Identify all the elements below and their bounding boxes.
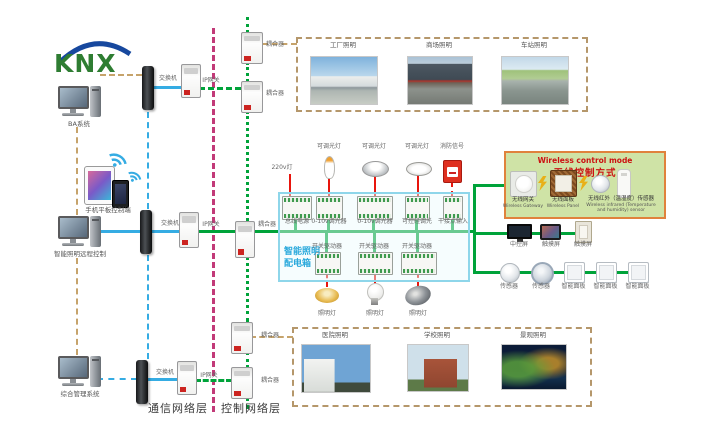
- fire-alarm-icon: [443, 160, 462, 183]
- pc-tower: [90, 356, 101, 387]
- pc-monitor: [58, 216, 89, 239]
- scene-label-mall: 商场照明: [407, 42, 471, 49]
- blue-line-pc3-switch3: [97, 378, 137, 380]
- smart-panel1-icon: [564, 262, 585, 283]
- central-screen-label: 中控屏: [500, 242, 538, 249]
- wireless-gateway-label-en: Wireless Gateway: [501, 204, 545, 209]
- module-bus-power: [282, 196, 312, 220]
- blue-line-vertical-2: [147, 255, 149, 359]
- distribution-title-line2: 配电箱: [284, 258, 320, 270]
- coupler2-label: 耦合器: [262, 91, 288, 98]
- touch-screen2-icon: [575, 221, 592, 243]
- green-dotted-3: [246, 111, 249, 221]
- sensor2-icon: [531, 262, 554, 285]
- lighting-lamp3-label: 照明灯: [403, 311, 433, 318]
- spotlight-icon: [403, 283, 433, 308]
- scene-label-landscape: 景观照明: [501, 332, 565, 339]
- panel-light-icon: [406, 162, 432, 176]
- wireless-gateway-icon: [510, 171, 537, 197]
- dimmable-lamp1-label: 可调光灯: [313, 144, 345, 151]
- wireless-panel-icon: [550, 170, 577, 197]
- pc-remote-control: [58, 216, 102, 252]
- wireless-panel-label: 无线面板 Wireless Panel: [545, 197, 581, 209]
- lightning-icon: [537, 176, 548, 191]
- network-switch-3: [136, 360, 148, 404]
- gateway1-label: IP网关: [198, 78, 224, 85]
- module-triac-dimmer: [405, 196, 430, 220]
- pc2-label: 智能照明远程控制: [36, 251, 124, 258]
- network-switch-2: [140, 210, 152, 254]
- pc-base: [62, 383, 84, 386]
- mobile-label: 手机平板控制端: [60, 207, 156, 214]
- lighting-lamp2-label: 照明灯: [360, 311, 390, 318]
- gateway3-label: IP网关: [196, 373, 222, 380]
- pc-tower: [90, 216, 101, 247]
- wireless-title-en: Wireless control mode: [506, 156, 664, 165]
- knx-logo-text: KNX: [54, 49, 117, 78]
- bulb-base: [371, 298, 378, 305]
- ceiling-lamp-icon: [315, 288, 339, 303]
- pc-tower: [90, 86, 101, 117]
- wireless-gateway-label-cn: 无线网关: [501, 197, 545, 204]
- smart-panel1-label: 智能面板: [558, 284, 589, 291]
- green-dotted-2: [246, 62, 249, 82]
- gateway2-label: IP网关: [198, 222, 224, 229]
- coupler-5: [231, 367, 253, 399]
- photo-mall-lighting: [407, 56, 473, 105]
- dimmable-lamp2-label: 可调光灯: [358, 144, 390, 151]
- lighting-lamp1-label: 照明灯: [312, 311, 342, 318]
- wireless-gateway-label: 无线网关 Wireless Gateway: [501, 197, 545, 209]
- smart-panel2-icon: [596, 262, 617, 283]
- module-dimmer-1: [316, 196, 343, 220]
- switch3-label: 交换机: [152, 370, 178, 377]
- switch2-label: 交换机: [157, 221, 183, 228]
- photo-hospital-lighting: [301, 344, 371, 393]
- coupler-3: [235, 221, 255, 258]
- lightning-icon: [578, 176, 589, 191]
- sensor1-label: 传感器: [494, 284, 524, 291]
- coupler-4: [231, 322, 253, 354]
- downlight-icon: [362, 161, 389, 177]
- photo-landscape-lighting: [501, 344, 567, 390]
- wireless-sensor-label-cn: 无线红外（温湿度）传感器: [582, 196, 660, 203]
- module-switch-actuator-3: [401, 252, 437, 275]
- blue-line-switch3-gateway3: [148, 378, 178, 381]
- pc-monitor: [58, 86, 89, 109]
- coupler-2: [241, 81, 263, 113]
- magenta-layer-divider: [212, 28, 215, 412]
- green-dotted-4: [246, 256, 249, 322]
- candle-bulb-icon: [324, 156, 335, 179]
- module2-label: 0-10v调光器: [303, 219, 355, 226]
- knx-lighting-system-diagram: KNX BA系统: [0, 0, 715, 443]
- pc-ba-system: [58, 86, 102, 122]
- pc-management-system: [58, 356, 102, 392]
- coupler-1: [241, 32, 263, 64]
- green-dotted-5: [246, 352, 249, 368]
- fire-signal-label: 消防信号: [436, 144, 468, 151]
- module5-label: 干接点输入: [431, 219, 475, 226]
- blue-line-switch1-gateway1: [154, 86, 182, 89]
- dimmable-lamp3-label: 可调光灯: [401, 144, 433, 151]
- lamp-220v-label: 220v灯: [269, 165, 295, 172]
- wireless-panel-label-cn: 无线面板: [545, 197, 581, 204]
- photo-school-lighting: [407, 344, 469, 392]
- smart-panel3-icon: [628, 262, 649, 283]
- coupler5-label: 耦合器: [257, 378, 283, 385]
- actuator2-label: 开关驱动器: [359, 244, 389, 251]
- touch-screen1-label: 触摸屏: [534, 242, 568, 249]
- module-dry-contact: [443, 196, 463, 220]
- coupler1-label: 耦合器: [262, 42, 288, 49]
- phone-device: [112, 180, 129, 208]
- central-screen-icon: [507, 224, 532, 239]
- pc1-label: BA系统: [53, 121, 105, 128]
- module-switch-actuator-2: [358, 252, 393, 275]
- coupler3-label: 耦合器: [254, 222, 280, 229]
- scene-label-hospital: 医院照明: [301, 332, 369, 339]
- wifi-icon: [106, 146, 132, 168]
- wireless-sensor-label: 无线红外（温湿度）传感器 Wireless infrared (Temperat…: [582, 196, 660, 213]
- pc-base: [62, 243, 84, 246]
- scene-label-school: 学校照明: [407, 332, 467, 339]
- smart-panel2-label: 智能面板: [590, 284, 621, 291]
- ip-gateway-3: [177, 361, 197, 395]
- khaki-line-vertical-1: [76, 127, 78, 215]
- communication-layer-label: 通信网络层: [148, 400, 208, 416]
- switch1-label: 交换机: [155, 76, 181, 83]
- green-dotted-1: [246, 17, 249, 33]
- module-dimmer-2: [357, 196, 393, 220]
- green-branch-wireless: [475, 184, 505, 187]
- touch-screen1-icon: [540, 224, 561, 240]
- photo-station-lighting: [501, 56, 569, 105]
- pc3-label: 综合管理系统: [44, 391, 116, 398]
- knx-logo: KNX: [50, 34, 138, 84]
- wireless-sensor-label-en: Wireless infrared (Temperature and humid…: [582, 203, 660, 213]
- module3-label: 0-10v调光器: [349, 219, 401, 226]
- wireless-sensor-stick-icon: [617, 169, 631, 198]
- touch-screen2-label: 触摸屏: [566, 242, 600, 249]
- green-line-gateway1-coupler: [199, 87, 241, 90]
- ip-gateway-2: [179, 212, 199, 248]
- control-layer-label: 控制网络层: [221, 400, 281, 416]
- bulb-lamp-icon: [367, 283, 383, 307]
- actuator1-label: 开关驱动器: [312, 244, 342, 251]
- photo-factory-lighting: [310, 56, 378, 105]
- pc-monitor: [58, 356, 89, 379]
- green-right-vertical: [473, 184, 476, 274]
- network-switch-1: [142, 66, 154, 110]
- scene-label-factory: 工厂照明: [310, 42, 376, 49]
- wireless-sensor-dome-icon: [591, 175, 610, 193]
- blue-line-pc2-gateway2: [97, 230, 180, 233]
- wireless-panel-label-en: Wireless Panel: [545, 204, 581, 209]
- actuator3-label: 开关驱动器: [402, 244, 432, 251]
- blue-line-vertical-1: [147, 112, 149, 209]
- khaki-line-vertical-2: [76, 258, 78, 355]
- tablet-device: [84, 166, 115, 205]
- coupler4-label: 耦合器: [257, 333, 283, 340]
- sensor1-icon: [500, 263, 520, 283]
- pc-base: [62, 113, 84, 116]
- sensor2-label: 传感器: [526, 284, 556, 291]
- smart-panel3-label: 智能面板: [622, 284, 653, 291]
- scene-label-station: 车站照明: [501, 42, 567, 49]
